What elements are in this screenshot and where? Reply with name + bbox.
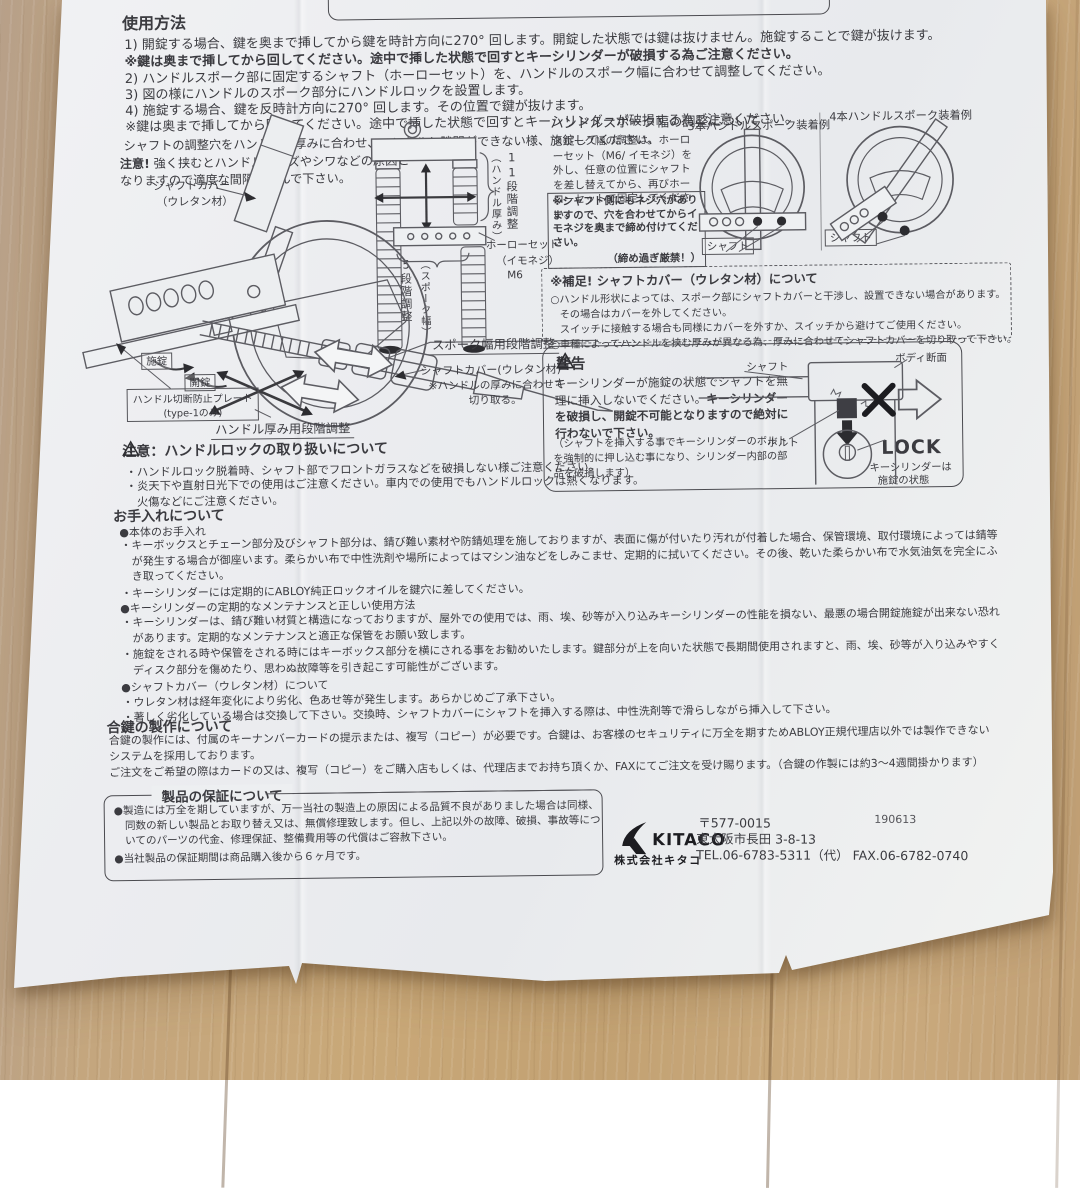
top-cutoff-box xyxy=(327,0,830,21)
company-block: 190613 KITACO 株式会社キタコ 〒577-0015 東大阪市長田 3… xyxy=(606,808,1026,879)
warning-title: !警告 xyxy=(556,352,585,373)
cover-cut-note3: 切り取る。 xyxy=(469,392,522,408)
warning-triangle-icon: ! xyxy=(556,353,574,369)
spoke-steps-label: スポーク幅用段階調整 xyxy=(428,334,559,356)
warranty-paragraph: ●当社製品の保証期間は商品購入後から６ヶ月です。 xyxy=(114,848,366,866)
paper-surface: 使用方法 1) 開錠する場合、鍵を奥まで挿してから鍵を時計方向に270° 回しま… xyxy=(0,0,1080,1080)
caution-title: !注意：ハンドルロックの取り扱いについて xyxy=(122,438,388,461)
supplement-box: ※補足! シャフトカバー（ウレタン材）について ○ハンドル形状によっては、スポー… xyxy=(541,262,1012,344)
lock-warning-diagram xyxy=(692,347,959,488)
instruction-sheet: 使用方法 1) 開錠する場合、鍵を奥まで挿してから鍵を時計方向に270° 回しま… xyxy=(0,0,1080,1080)
care-paragraph: ・キーボックスとチェーン部分及びシャフト部分は、錆び難い素材や防錆処理を施してお… xyxy=(120,527,1008,585)
thickness-steps-label: ハンドル厚み用段階調整 xyxy=(211,418,355,440)
example-divider xyxy=(819,113,822,251)
lock-label: 施錠 xyxy=(141,352,172,369)
warranty-paragraph: ●製造には万全を期していますが、万一当社の製造上の原因による品質不良がありました… xyxy=(114,798,604,848)
cover-cut-note1: シャフトカバー(ウレタン材) xyxy=(420,361,561,379)
wheel-3spoke-diagram xyxy=(692,127,814,254)
caution-triangle-icon: ! xyxy=(122,441,139,456)
usage-title: 使用方法 xyxy=(122,9,186,34)
svg-text:!: ! xyxy=(563,358,568,369)
paper-content: 使用方法 1) 開錠する場合、鍵を奥まで挿してから鍵を時計方向に270° 回しま… xyxy=(0,0,1080,1087)
wheel-4spoke-diagram xyxy=(835,117,967,247)
shaft-cover-label1: シャフトカバー xyxy=(153,177,230,194)
date-code: 190613 xyxy=(874,813,916,826)
shaft-cover-label2: （ウレタン材） xyxy=(156,193,233,210)
svg-text:!: ! xyxy=(129,445,133,456)
company-name: 株式会社キタコ xyxy=(614,852,702,868)
company-tel: TEL.06-6783-5311（代） FAX.06-6782-0740 xyxy=(696,844,968,864)
cut-prevention-plate-label: ハンドル切断防止プレート (type-1のみ) xyxy=(127,387,259,422)
